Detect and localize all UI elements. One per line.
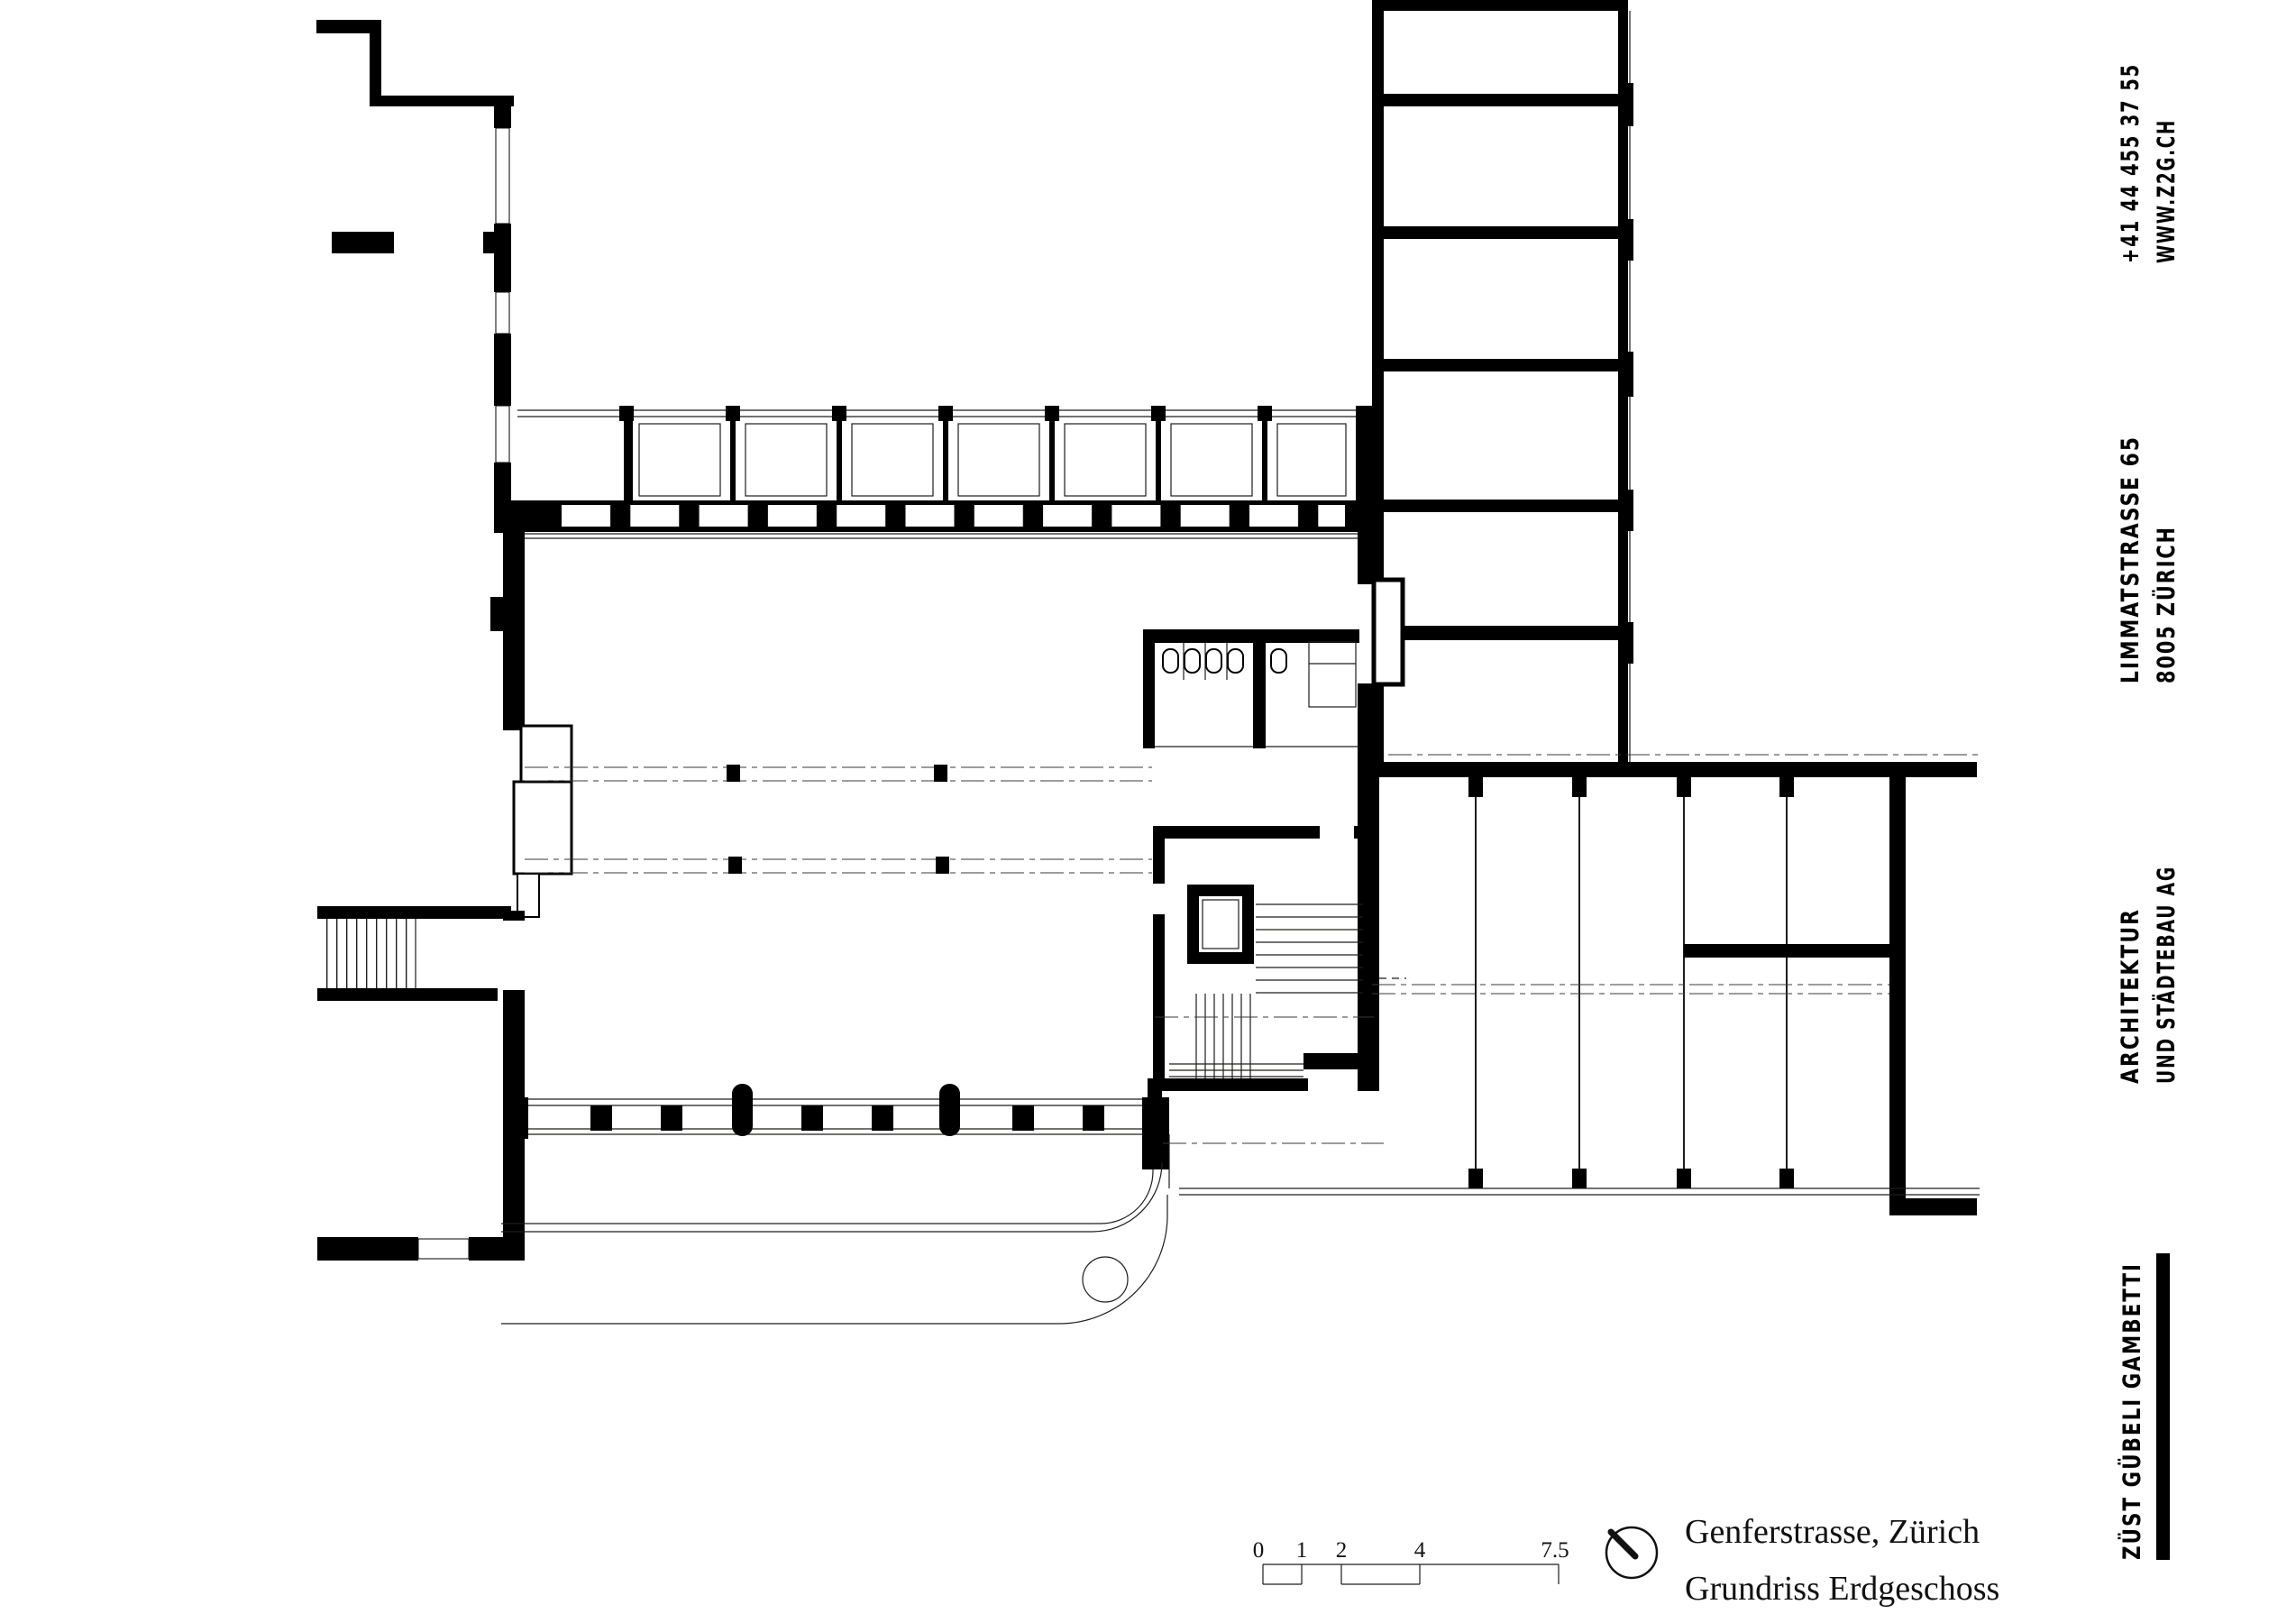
oriel-box: [514, 782, 572, 874]
balcony-cell: [639, 424, 720, 496]
west-boundary-wall: [494, 105, 511, 533]
title-block: Genferstrasse, Zürich Grundriss Erdgesch…: [1685, 1513, 1999, 1608]
logo-bar: [2156, 1253, 2170, 1560]
sink-counter: [1309, 642, 1356, 707]
balcony-cell: [1065, 424, 1146, 496]
north-indicator-icon: [1606, 1527, 1657, 1578]
firm-name: ZÜST GÜBELI GAMBETTI: [2117, 1262, 2146, 1560]
firm-phone: +41 44 455 37 55: [2117, 63, 2145, 263]
round-column: [732, 1084, 753, 1136]
firm-address-city: 8005 ZÜRICH: [2151, 526, 2181, 683]
scale-label-7-5: 7.5: [1541, 1538, 1569, 1563]
floor-plan-drawing: 0 1 2 4 7.5 Genferstrasse, Zürich Grundr…: [0, 0, 2296, 1623]
firm-discipline-2: UND STÄDTEBAU AG: [2152, 866, 2181, 1084]
west-stair: [317, 906, 511, 1001]
window-element: [1374, 580, 1403, 684]
scale-bar: 0 1 2 4 7.5: [1253, 1538, 1569, 1584]
column: [936, 857, 949, 874]
annex-partition: [1684, 944, 1891, 958]
column-grid: [525, 765, 1152, 874]
stair-core: [1153, 826, 1406, 1091]
drawing-title: Grundriss Erdgeschoss: [1685, 1570, 1999, 1608]
wc-block: [1143, 629, 1359, 748]
project-title: Genferstrasse, Zürich: [1685, 1513, 1980, 1551]
column: [934, 765, 947, 782]
walkway: [501, 1162, 1167, 1324]
balcony-cell: [852, 424, 933, 496]
east-annex: [1163, 755, 1983, 1215]
balcony-cell: [1277, 424, 1346, 496]
side-entrance: [1148, 1053, 1379, 1165]
scale-label-0: 0: [1253, 1538, 1265, 1563]
toilet-fixture: [1206, 649, 1221, 673]
firm-address-street: LIMMATSTRASSE 65: [2117, 436, 2145, 683]
firm-credits: +41 44 455 37 55 WWW.Z2G.CH LIMMATSTRASS…: [2117, 63, 2181, 1560]
oriel-box: [521, 726, 572, 782]
southeast-corner-pier: [1142, 1097, 1169, 1169]
scale-label-1: 1: [1296, 1538, 1308, 1563]
south-facade: [503, 1084, 1169, 1169]
site-wall-fragments: [316, 20, 514, 253]
toilet-fixture: [1163, 649, 1178, 673]
balcony-cell: [1171, 424, 1252, 496]
balcony-row: [517, 406, 1384, 505]
neighbour-building: [1372, 0, 1633, 775]
scale-label-4: 4: [1414, 1538, 1426, 1563]
tree: [1083, 1257, 1128, 1302]
firm-website: WWW.Z2G.CH: [2153, 119, 2181, 263]
plan-sheet: 0 1 2 4 7.5 Genferstrasse, Zürich Grundr…: [0, 0, 2296, 1623]
toilet-fixture: [1185, 649, 1200, 673]
main-building: [317, 532, 1406, 1261]
detached-wall-pier: [332, 232, 394, 253]
toilet-fixture: [1271, 649, 1286, 673]
round-column: [939, 1084, 960, 1136]
firm-discipline-1: ARCHITEKTUR: [2117, 908, 2145, 1084]
column: [728, 857, 742, 874]
balcony-cell: [958, 424, 1039, 496]
toilet-fixture: [1228, 649, 1243, 673]
north-facade: [505, 500, 1384, 538]
oriel-box: [517, 874, 539, 917]
scale-label-2: 2: [1336, 1538, 1348, 1563]
column: [727, 765, 740, 782]
balcony-cell: [746, 424, 827, 496]
